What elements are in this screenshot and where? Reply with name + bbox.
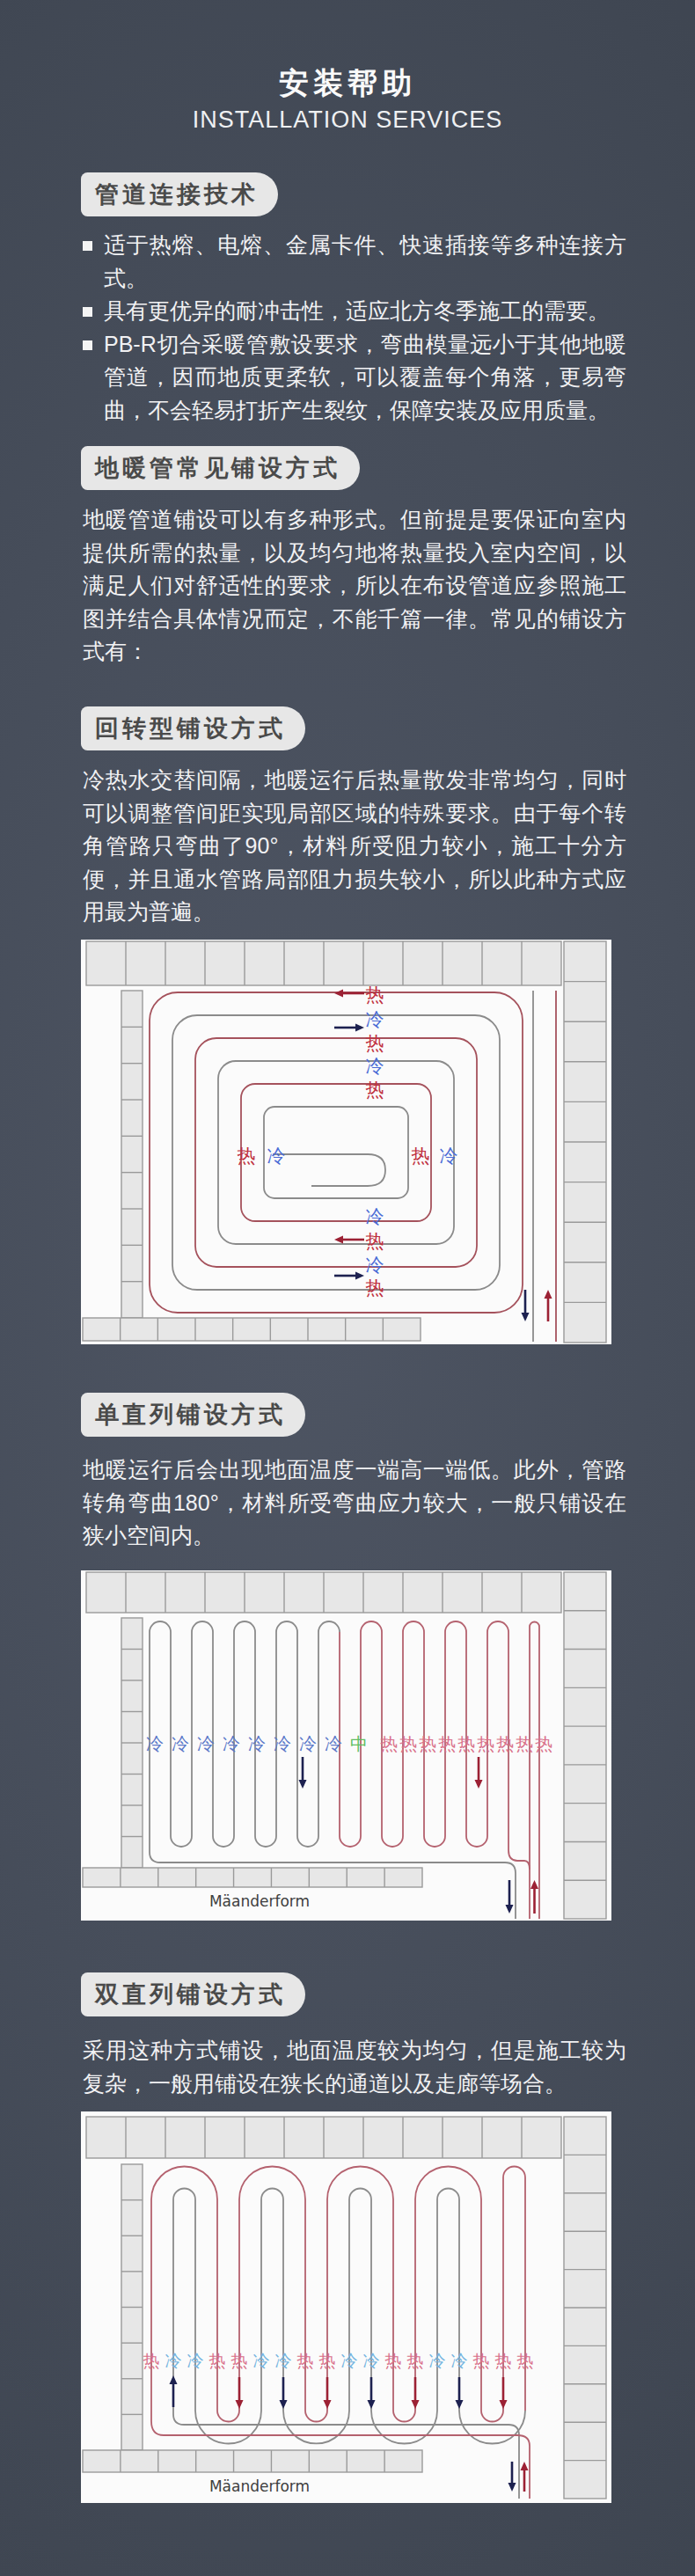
page-title: 安装帮助 bbox=[0, 63, 695, 104]
cold-label: 冷 bbox=[299, 1733, 317, 1754]
hot-label: 热 bbox=[477, 1733, 494, 1754]
section-heading-double-row: 双直列铺设方式 bbox=[81, 1972, 305, 2016]
cold-label: 冷 bbox=[341, 2351, 358, 2370]
caption: Mäanderform bbox=[209, 2477, 310, 2495]
cold-label: 冷 bbox=[325, 1733, 342, 1754]
bullet-item: 具有更优异的耐冲击性，适应北方冬季施工的需要。 bbox=[83, 295, 626, 328]
single-row-paragraph: 地暖运行后会出现地面温度一端高一端低。此外，管路转角弯曲180°，材料所受弯曲应… bbox=[83, 1453, 626, 1553]
diagram-caption: Mäanderform bbox=[209, 1892, 310, 1910]
section-heading-single-row: 单直列铺设方式 bbox=[81, 1393, 305, 1437]
cold-label: 冷 bbox=[429, 2351, 446, 2370]
tile-row bbox=[83, 2450, 422, 2472]
cold-label: 冷 bbox=[363, 2351, 380, 2370]
cold-label: 冷 bbox=[366, 1056, 384, 1077]
tile-column bbox=[564, 1572, 606, 1919]
cold-label: 冷 bbox=[187, 2351, 204, 2370]
pipe-connection-bullet-list: 适于热熔、电熔、金属卡件、快速插接等多种连接方式。 具有更优异的耐冲击性，适应北… bbox=[83, 229, 626, 427]
spiral-layout-diagram: 热冷热冷热热冷热冷冷热冷热 bbox=[81, 940, 611, 1344]
hot-label: 热 bbox=[438, 1733, 456, 1754]
laying-methods-paragraph: 地暖管道铺设可以有多种形式。但前提是要保证向室内提供所需的热量，以及均匀地将热量… bbox=[83, 503, 626, 669]
cold-label: 冷 bbox=[223, 1733, 240, 1754]
hot-label: 热 bbox=[366, 1079, 384, 1101]
section-heading-spiral: 回转型铺设方式 bbox=[81, 706, 305, 750]
bullet-item: PB-R切合采暖管敷设要求，弯曲模量远小于其他地暖管道，因而地质更柔软，可以覆盖… bbox=[83, 328, 626, 428]
hot-label: 热 bbox=[366, 1033, 384, 1054]
cold-label: 冷 bbox=[248, 1733, 266, 1754]
hot-label: 热 bbox=[517, 2351, 534, 2370]
cold-label: 冷 bbox=[275, 2351, 292, 2370]
double-meander-diagram: 热冷冷热热冷冷热热冷冷热热冷冷热热热Mäanderform bbox=[81, 2111, 611, 2503]
cold-label: 冷 bbox=[366, 1009, 384, 1030]
tile-row bbox=[83, 1318, 421, 1341]
hot-label: 热 bbox=[419, 1733, 436, 1754]
cold-label: 冷 bbox=[440, 1145, 458, 1167]
cold-label: 冷 bbox=[172, 1733, 189, 1754]
hot-label: 热 bbox=[399, 1733, 417, 1754]
cold-label: 冷 bbox=[267, 1145, 286, 1167]
hot-label: 热 bbox=[143, 2351, 160, 2370]
cold-label: 冷 bbox=[451, 2351, 468, 2370]
cold-label: 冷 bbox=[366, 1255, 384, 1276]
cold-label: 冷 bbox=[366, 1206, 384, 1227]
page-subtitle: INSTALLATION SERVICES bbox=[0, 106, 695, 134]
cold-label: 冷 bbox=[253, 2351, 270, 2370]
hot-label: 热 bbox=[366, 1277, 384, 1299]
cold-label: 冷 bbox=[197, 1733, 215, 1754]
bullet-item: 适于热熔、电熔、金属卡件、快速插接等多种连接方式。 bbox=[83, 229, 626, 295]
hot-label: 热 bbox=[473, 2351, 490, 2370]
section-heading-pipe-connection: 管道连接技术 bbox=[81, 172, 278, 216]
single-meander-diagram: 冷冷冷冷冷冷冷冷中热热热热热热热热热Mäanderform bbox=[81, 1570, 611, 1921]
hot-label: 热 bbox=[297, 2351, 314, 2370]
center-label: 中 bbox=[350, 1733, 368, 1754]
hot-label: 热 bbox=[385, 2351, 402, 2370]
hot-label: 热 bbox=[457, 1733, 475, 1754]
installation-help-page: 安装帮助 INSTALLATION SERVICES 管道连接技术 适于热熔、电… bbox=[0, 0, 695, 2576]
caption: Mäanderform bbox=[209, 1892, 310, 1910]
hot-label: 热 bbox=[495, 2351, 512, 2370]
tile-row bbox=[83, 1868, 422, 1887]
hot-label: 热 bbox=[380, 1733, 398, 1754]
hot-label: 热 bbox=[496, 1733, 514, 1754]
cold-label: 冷 bbox=[274, 1733, 291, 1754]
tile-column bbox=[121, 991, 143, 1318]
hot-label: 热 bbox=[238, 1145, 256, 1167]
spiral-paragraph: 冷热水交替间隔，地暖运行后热量散发非常均匀，同时可以调整管间距实现局部区域的特殊… bbox=[83, 764, 626, 929]
hot-label: 热 bbox=[407, 2351, 424, 2370]
hot-label: 热 bbox=[231, 2351, 248, 2370]
hot-label: 热 bbox=[319, 2351, 336, 2370]
hot-label: 热 bbox=[516, 1733, 533, 1754]
hot-label: 热 bbox=[366, 984, 384, 1006]
hot-label: 热 bbox=[209, 2351, 226, 2370]
double-row-paragraph: 采用这种方式铺设，地面温度较为均匀，但是施工较为复杂，一般用铺设在狭长的通道以及… bbox=[83, 2034, 626, 2100]
section-heading-laying-methods: 地暖管常见铺设方式 bbox=[81, 446, 360, 490]
hot-label: 热 bbox=[366, 1231, 384, 1252]
cold-label: 冷 bbox=[146, 1733, 164, 1754]
hot-label: 热 bbox=[535, 1733, 552, 1754]
hot-label: 热 bbox=[412, 1145, 430, 1167]
diagram-caption: Mäanderform bbox=[209, 2477, 310, 2495]
cold-label: 冷 bbox=[165, 2351, 182, 2370]
